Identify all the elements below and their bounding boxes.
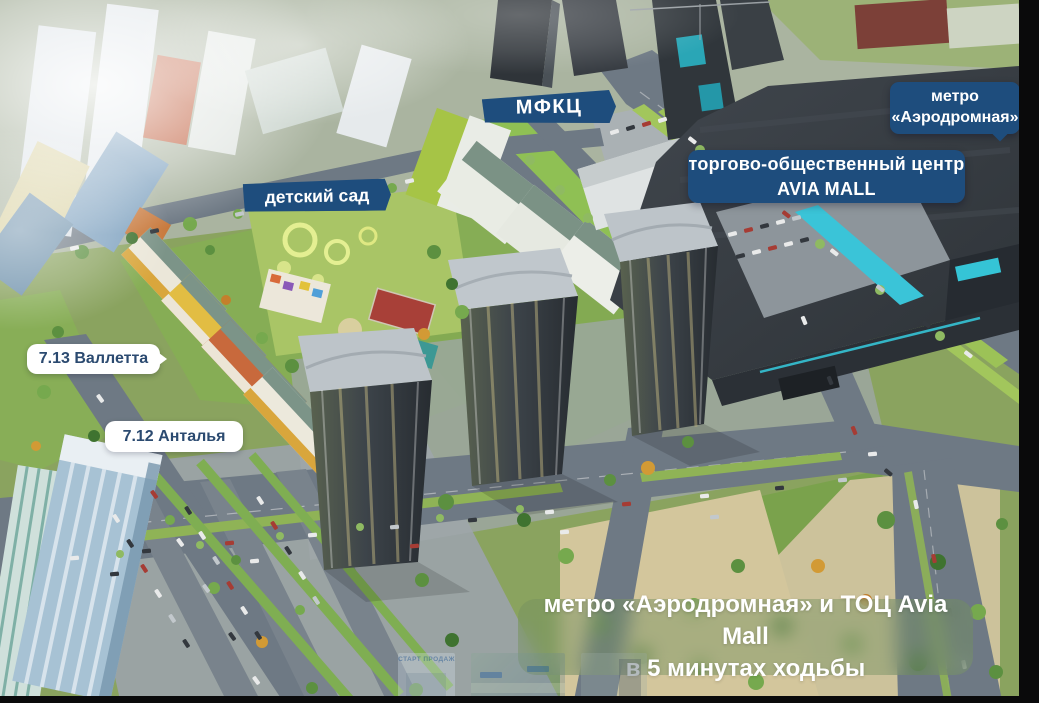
ghost-thumbnail-render (581, 653, 647, 699)
ghost-thumbnail-chip (480, 672, 502, 678)
banner-line1: метро «Аэродромная» и ТОЦ Avia Mall (518, 589, 973, 653)
label-avia-mall: торгово-общественный центр AVIA MALL (688, 150, 965, 203)
label-avia-mall-line1: торгово-общественный центр (688, 152, 964, 177)
ghost-thumbnail-start-sales: СТАРТ ПРОДАЖ (398, 653, 455, 699)
label-mfkc-text: МФКЦ (516, 95, 583, 119)
label-kindergarten-text: детский сад (264, 184, 369, 207)
label-metro-line2: «Аэродромная» (892, 108, 1019, 129)
black-bar-right (1019, 0, 1039, 703)
label-metro-aerodromnaya: метро «Аэродромная» (890, 82, 1020, 134)
label-kindergarten: детский сад (243, 178, 392, 213)
label-metro-line1: метро (931, 87, 979, 108)
plaque-building-713-valletta: 7.13 Валлетта (27, 344, 160, 374)
plaque-building-712-antalya: 7.12 Анталья (105, 421, 243, 452)
ghost-thumbnail-masterplan (471, 653, 565, 699)
plaque-712-text: 7.12 Анталья (123, 428, 226, 446)
banner-line2: в 5 минутах ходьбы (626, 653, 866, 685)
ghost-thumbnail-caption: СТАРТ ПРОДАЖ (398, 656, 455, 663)
label-avia-mall-line2: AVIA MALL (777, 177, 876, 202)
ghost-thumbnail-building-shape (619, 659, 641, 699)
black-bar-bottom (0, 696, 1039, 703)
ghost-slide-thumbnails: СТАРТ ПРОДАЖ (398, 653, 647, 699)
ghost-thumbnail-strip (471, 683, 565, 693)
ghost-thumbnail-chip (527, 666, 549, 672)
promo-slide: МФКЦ метро «Аэродромная» торгово-обществ… (0, 0, 1039, 703)
plaque-713-text: 7.13 Валлетта (39, 350, 148, 368)
